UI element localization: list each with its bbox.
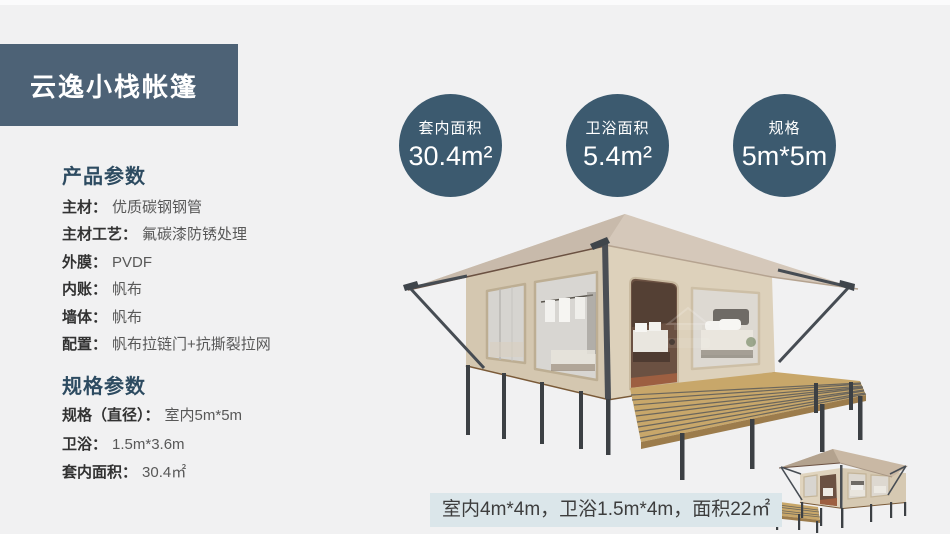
window-interior-plant [746, 337, 756, 347]
badge-value: 5m*5m [733, 141, 836, 172]
small-window [804, 475, 817, 497]
badge-inner-area: 套内面积 30.4m² [399, 94, 502, 197]
param-row-config: 配置：帆布拉链门+抗撕裂拉网 [62, 331, 271, 358]
param-label: 墙体： [62, 309, 107, 326]
param-row-wall: 墙体：帆布 [62, 304, 271, 331]
title-banner: 云逸小栈帐篷 [0, 44, 238, 126]
tent-door [630, 278, 678, 389]
slide: 云逸小栈帐篷 产品参数 主材：优质碳钢钢管 主材工艺：氟碳漆防锈处理 外膜：PV… [0, 0, 950, 534]
param-value: 帆布 [112, 309, 142, 326]
param-label: 外膜： [62, 254, 107, 271]
product-params-list: 主材：优质碳钢钢管 主材工艺：氟碳漆防锈处理 外膜：PVDF 内账：帆布 墙体：… [62, 194, 271, 358]
page-title: 云逸小栈帐篷 [0, 67, 198, 104]
param-row-outer-membrane: 外膜：PVDF [62, 249, 271, 276]
param-value: 30.4㎡ [142, 464, 186, 481]
spec-params-heading: 规格参数 [62, 370, 146, 399]
param-value: 优质碳钢钢管 [112, 199, 202, 216]
param-value: 氟碳漆防锈处理 [142, 226, 247, 243]
param-label: 套内面积： [62, 464, 137, 481]
badge-spec: 规格 5m*5m [733, 94, 836, 197]
param-value: PVDF [112, 254, 152, 271]
param-row-inner-tent: 内账：帆布 [62, 276, 271, 303]
param-label: 主材： [62, 199, 107, 216]
badge-title: 规格 [733, 117, 836, 138]
param-value: 帆布 [112, 281, 142, 298]
param-value: 1.5m*3.6m [112, 436, 185, 453]
param-label: 卫浴： [62, 436, 107, 453]
param-row-bathroom: 卫浴：1.5m*3.6m [62, 431, 242, 460]
page-top-border [0, 0, 950, 5]
param-label: 配置： [62, 336, 107, 353]
badge-value: 5.4m² [566, 141, 669, 172]
param-label: 主材工艺： [62, 226, 137, 243]
param-row-material: 主材：优质碳钢钢管 [62, 194, 271, 221]
product-params-heading: 产品参数 [62, 160, 146, 189]
param-label: 内账： [62, 281, 107, 298]
param-value: 帆布拉链门+抗撕裂拉网 [112, 336, 271, 353]
corner-post [840, 465, 843, 508]
badge-title: 卫浴面积 [566, 117, 669, 138]
badge-title: 套内面积 [399, 117, 502, 138]
badge-value: 30.4m² [399, 141, 502, 172]
param-value: 室内5m*5m [165, 407, 243, 424]
param-row-material-craft: 主材工艺：氟碳漆防锈处理 [62, 221, 271, 248]
small-tent-illustration [770, 440, 950, 534]
param-row-size: 规格（直径）：室内5m*5m [62, 402, 242, 431]
param-row-inner-area: 套内面积：30.4㎡ [62, 459, 242, 488]
small-tent-caption: 室内4m*4m，卫浴1.5m*4m，面积22㎡ [430, 493, 782, 527]
front-window [692, 288, 759, 369]
badge-bathroom-area: 卫浴面积 5.4m² [566, 94, 669, 197]
param-label: 规格（直径）： [62, 407, 160, 424]
spec-params-list: 规格（直径）：室内5m*5m 卫浴：1.5m*3.6m 套内面积：30.4㎡ [62, 402, 242, 488]
